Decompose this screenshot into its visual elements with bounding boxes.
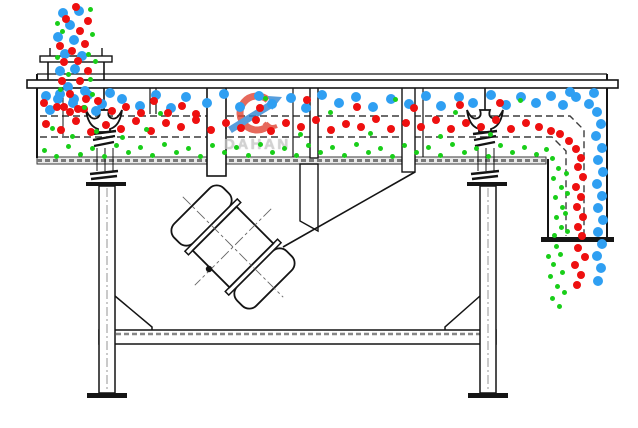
top-rail bbox=[27, 80, 618, 88]
support-leg-right bbox=[468, 186, 508, 398]
registered-mark: ® bbox=[288, 94, 295, 104]
discharge-chute bbox=[541, 159, 614, 242]
brand-text: DAHAN bbox=[224, 136, 291, 153]
cross-post-3 bbox=[402, 87, 415, 172]
base-beam bbox=[99, 330, 496, 344]
gusset-right bbox=[445, 296, 480, 330]
motor-bolt bbox=[206, 266, 212, 272]
vibrating-screen-diagram: ® DAHAN bbox=[0, 0, 638, 428]
brand-logo-icon bbox=[224, 92, 288, 136]
brand-watermark: ® DAHAN bbox=[224, 92, 314, 156]
vibration-motor bbox=[145, 159, 322, 336]
machine-line-art bbox=[0, 0, 638, 428]
support-leg-left bbox=[87, 186, 127, 398]
gusset-left bbox=[115, 296, 152, 330]
